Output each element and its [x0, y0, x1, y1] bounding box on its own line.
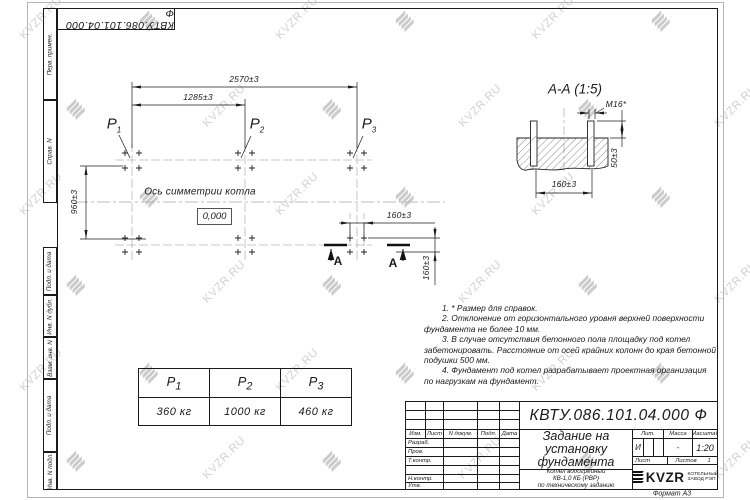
dim-bolt-spacing-v-label: 160±3	[421, 256, 431, 281]
dim-bolt-spacing-label: 160±3	[387, 210, 412, 220]
load-table-value-p2: 1000 кг	[210, 398, 281, 426]
note-line: 2. Отклонение от горизонтального уровня …	[424, 313, 720, 323]
load-table: P1 P2 P3 360 кг 1000 кг 460 кг	[138, 368, 352, 426]
load-table-header-p1: P1	[139, 369, 210, 398]
tb-product: Котел водогрейный КВ-1,0 КБ (РВР) по тех…	[519, 469, 633, 490]
notes-block: 1. * Размер для справок. 2. Отклонение о…	[424, 303, 720, 386]
note-line: фундамента не более 10 мм.	[424, 324, 720, 334]
note-line: 4. Фундамент под котел разрабатывает про…	[424, 365, 720, 375]
tb-mass-value: -	[663, 438, 693, 457]
note-line: 1. * Размер для справок.	[424, 303, 720, 313]
anchor-bolt-crosses	[122, 150, 367, 255]
company-name: КОТЕЛЬНЫЙ ЗАВОД РЭП	[688, 472, 718, 483]
symmetry-axis-label: Ось симметрии котла	[144, 187, 256, 198]
load-table-value-p3: 460 кг	[281, 398, 352, 426]
dim-depth-label: 960±3	[69, 190, 79, 215]
load-table-value-row: 360 кг 1000 кг 460 кг	[139, 398, 352, 426]
load-table-header-p3: P3	[281, 369, 352, 398]
tb-logo-cell: KVZR КОТЕЛЬНЫЙ ЗАВОД РЭП	[632, 464, 718, 490]
load-label-p1: P1	[107, 116, 121, 135]
kvzr-logo-icon	[632, 470, 643, 485]
tb-designation: КВТУ.086.101.04.000 Ф	[519, 401, 718, 430]
tb-doc-title: Задание на установку фундамента	[519, 429, 633, 470]
note-line: по нагрузкам на фундамент.	[424, 376, 720, 386]
load-label-p3: P3	[362, 116, 376, 135]
load-label-p2: P2	[250, 116, 264, 135]
level-mark-box: 0,000	[197, 208, 232, 225]
load-table-header-p2: P2	[210, 369, 281, 398]
note-line: подушки 500 мм.	[424, 355, 720, 365]
section-dim-height-label: 50±3	[609, 148, 619, 168]
dim-total-label: 2570±3	[229, 74, 259, 84]
drawing-sheet: KVZR.RUKVZR.RUKVZR.RUKVZR.RUKVZR.RUKVZR.…	[0, 0, 750, 500]
note-line: 3. В случае отсутствия бетонного пола пл…	[424, 334, 720, 344]
dim-half-label: 1285±3	[183, 92, 213, 102]
format-label: Формат А3	[653, 491, 691, 498]
section-dim-spacing-label: 160±3	[552, 179, 577, 189]
load-table-value-p1: 360 кг	[139, 398, 210, 426]
tb-scale-value: 1:20	[692, 438, 718, 457]
section-letter-right: А	[389, 256, 398, 270]
thread-label: М16*	[606, 99, 627, 109]
tb-row-utv: Утв.	[405, 482, 444, 490]
kvzr-logo-text: KVZR	[646, 470, 685, 485]
anchor-bolt-right	[588, 121, 595, 166]
title-block: Изм. Лист N докум. Подп. Дата Разраб. Пр…	[405, 401, 718, 490]
plan-centerlines	[75, 108, 564, 263]
load-table-header-row: P1 P2 P3	[139, 369, 352, 398]
section-letter-left: А	[334, 254, 343, 268]
plan-dimensions	[80, 82, 440, 285]
level-mark: 0,000	[203, 211, 227, 222]
section-title: А-А (1:5)	[548, 82, 602, 97]
note-line: забетонировать. Расстояние от осей крайн…	[424, 345, 720, 355]
anchor-bolt-left	[531, 121, 538, 166]
